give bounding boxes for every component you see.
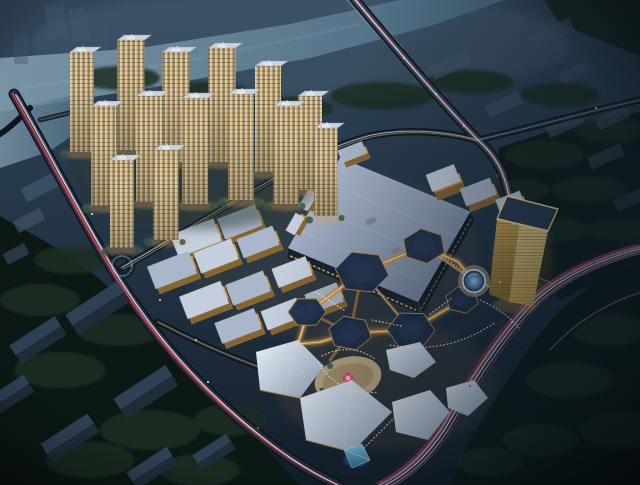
night-aerial-scene <box>0 0 640 485</box>
aerial-rendering-screenshot <box>0 0 640 485</box>
vignette <box>0 0 640 485</box>
